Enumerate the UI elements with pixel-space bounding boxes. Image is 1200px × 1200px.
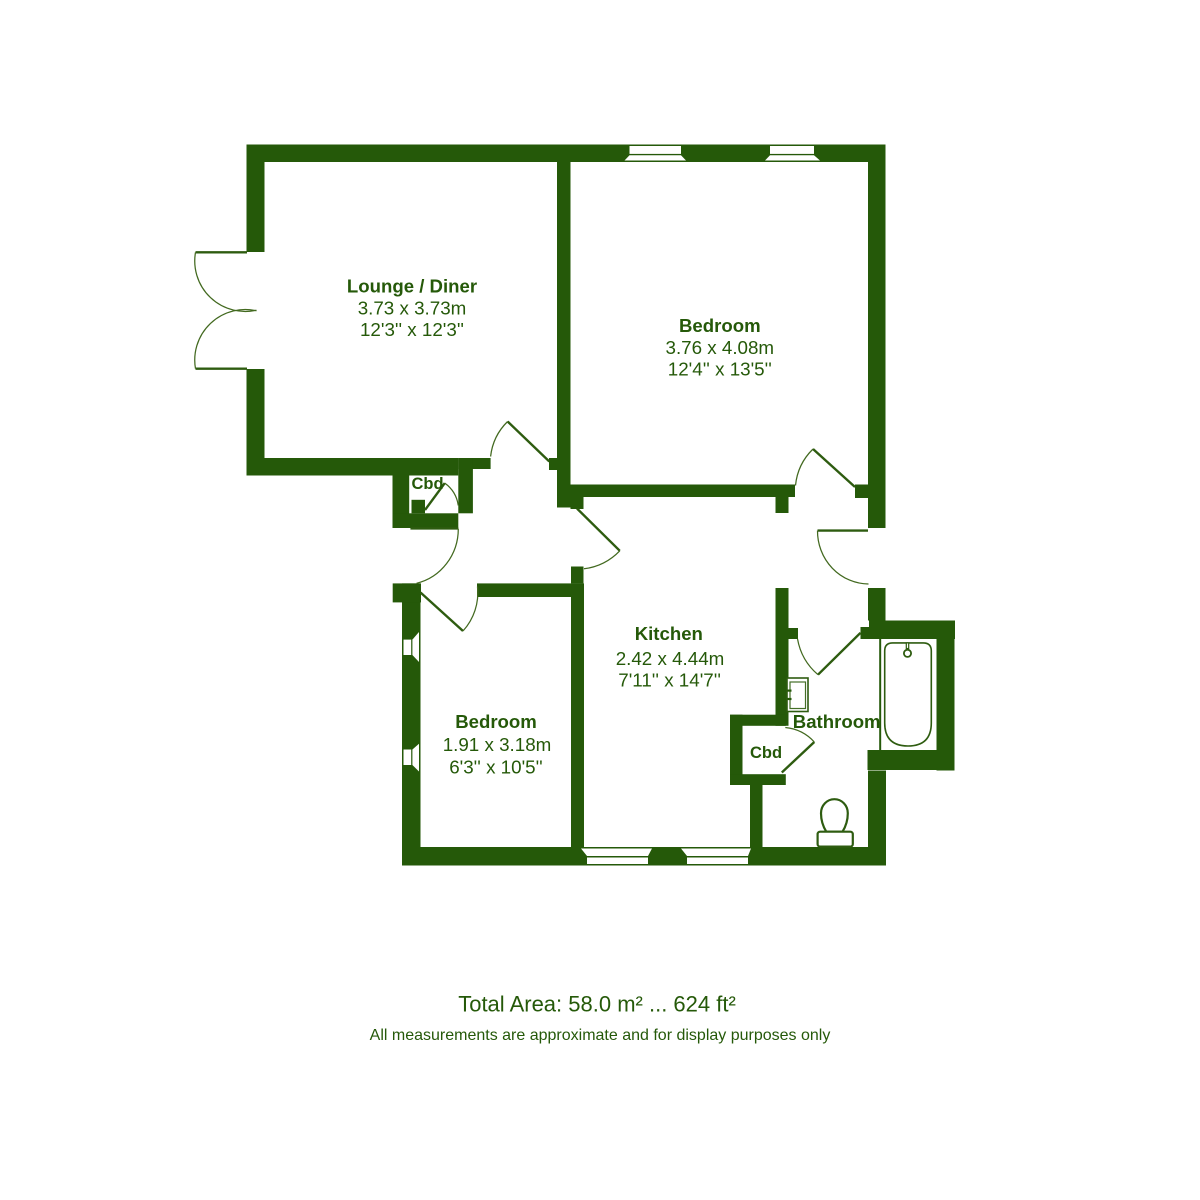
svg-text:3.76 x 4.08m: 3.76 x 4.08m [666, 337, 775, 358]
svg-text:12'4'' x 13'5'': 12'4'' x 13'5'' [668, 358, 772, 379]
svg-text:1.91 x 3.18m: 1.91 x 3.18m [443, 734, 552, 755]
svg-text:Bedroom: Bedroom [679, 315, 761, 336]
svg-text:Kitchen: Kitchen [635, 623, 703, 644]
svg-text:Lounge / Diner: Lounge / Diner [347, 275, 477, 296]
svg-text:2.42 x 4.44m: 2.42 x 4.44m [616, 648, 725, 669]
svg-text:12'3'' x 12'3'': 12'3'' x 12'3'' [360, 319, 464, 340]
svg-text:All measurements are approxima: All measurements are approximate and for… [370, 1027, 831, 1044]
svg-text:Bedroom: Bedroom [455, 711, 537, 732]
svg-text:Cbd: Cbd [411, 475, 443, 493]
svg-text:Cbd: Cbd [750, 744, 782, 762]
svg-text:Total Area: 58.0 m² ... 624 ft: Total Area: 58.0 m² ... 624 ft² [458, 992, 736, 1017]
svg-text:Bathroom: Bathroom [793, 711, 881, 732]
svg-text:7'11'' x 14'7'': 7'11'' x 14'7'' [618, 670, 721, 691]
svg-text:6'3'' x 10'5'': 6'3'' x 10'5'' [449, 757, 543, 778]
svg-text:3.73 x 3.73m: 3.73 x 3.73m [358, 298, 467, 319]
